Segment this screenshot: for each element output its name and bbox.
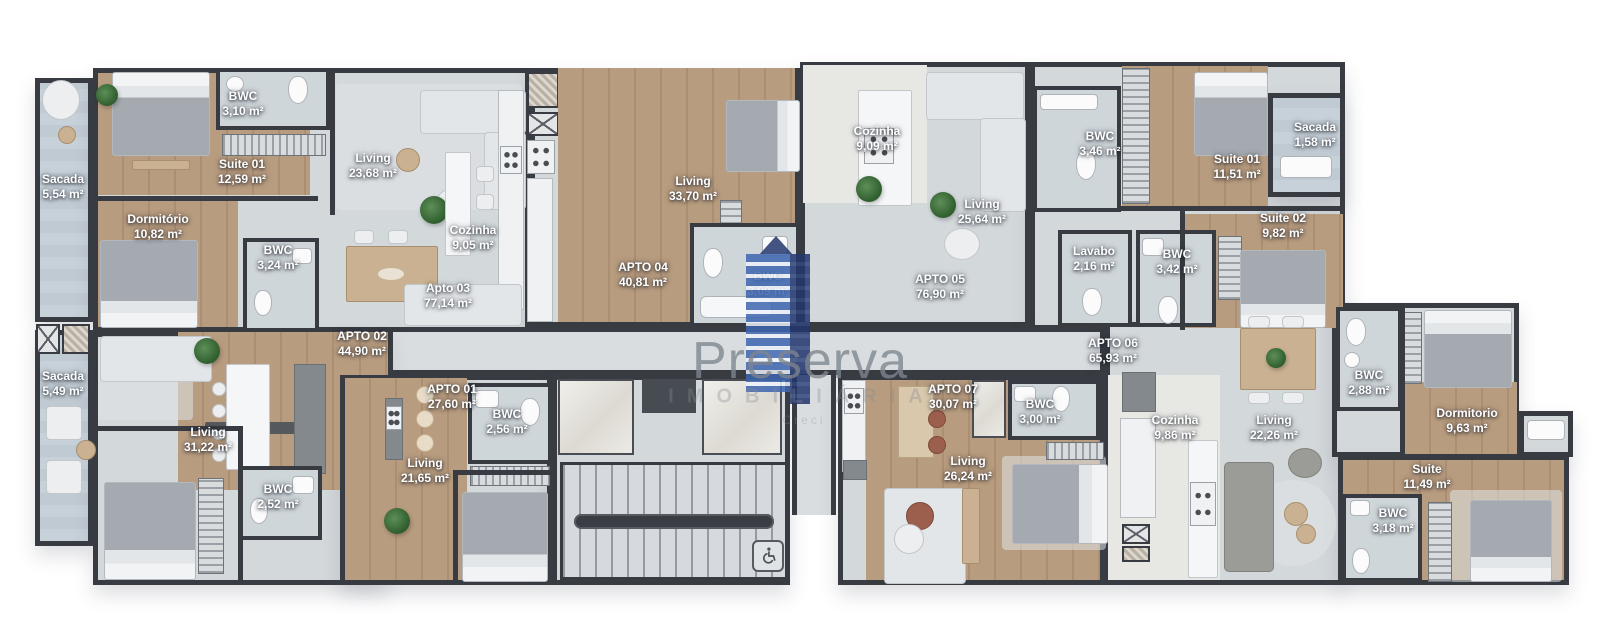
room-label-dormitorio: Dormitorio9,63 m² [1436, 406, 1497, 436]
coffee-table [396, 148, 420, 172]
room-name: Sacada [42, 172, 84, 187]
plant [194, 338, 220, 364]
room-name: Suite [1403, 462, 1450, 477]
bed-bench [132, 160, 190, 170]
room-name: Living [944, 454, 992, 469]
closet [1122, 68, 1150, 204]
toilet [1158, 296, 1178, 324]
wall [453, 470, 458, 585]
side-table [76, 440, 96, 460]
sofa [1224, 462, 1274, 572]
room-area: 9,63 m² [1436, 421, 1497, 436]
bed [1470, 500, 1552, 582]
elevator [702, 379, 782, 455]
room-area: 30,07 m² [928, 397, 978, 412]
plan-shape [764, 547, 775, 562]
bed [104, 482, 196, 580]
room-label-bwc: BWC3,00 m² [1019, 397, 1060, 427]
bed [112, 72, 210, 156]
ac-unit [1527, 420, 1565, 440]
kitchen-cabinet [1122, 372, 1156, 412]
sink [1040, 94, 1098, 110]
sofa [926, 72, 1024, 120]
sink [1344, 352, 1360, 368]
room-area: 2,88 m² [1348, 383, 1389, 398]
room-label-lavabo: Lavabo2,16 m² [1073, 244, 1115, 274]
side-table [1296, 524, 1316, 544]
room-area: 2,16 m² [1073, 259, 1115, 274]
room-label-apto-07: APTO 0730,07 m² [928, 382, 978, 412]
room-name: Living [401, 456, 449, 471]
stove [1190, 482, 1216, 526]
room-area: 11,51 m² [1213, 167, 1260, 182]
corridor [388, 327, 1105, 375]
room-label-bwc: BWC3,24 m² [257, 243, 298, 273]
room-label-living: Living23,68 m² [349, 151, 397, 181]
room-label-apto-02: APTO 0244,90 m² [337, 329, 387, 359]
room-label-bwc: BWC3,10 m² [222, 89, 263, 119]
sink [762, 236, 788, 256]
room-name: BWC [1079, 129, 1120, 144]
room-name: APTO 01 [427, 382, 477, 397]
tv-console [962, 488, 980, 564]
closet [1046, 442, 1104, 460]
room-label-suite-01: Suite 0111,51 m² [1213, 152, 1260, 182]
plant [96, 84, 118, 106]
closet [470, 466, 550, 486]
room-label-cozinha: Cozinha9,86 m² [1152, 413, 1199, 443]
room-name: Suite 01 [1213, 152, 1260, 167]
room-name: BWC [1348, 368, 1389, 383]
room-area: 25,64 m² [958, 212, 1006, 227]
room-name: BWC [1019, 397, 1060, 412]
room-area: 21,65 m² [401, 471, 449, 486]
room-area: 2,52 m² [257, 497, 298, 512]
room-area: 10,82 m² [127, 227, 188, 242]
balcony-chair [46, 406, 82, 440]
room-name: Suite 02 [1260, 211, 1306, 226]
room-label-bwc: BWC2,52 m² [257, 482, 298, 512]
closet [1428, 502, 1452, 582]
room-label-bwc: BWC2,56 m² [486, 407, 527, 437]
room-area: 3,46 m² [1079, 144, 1120, 159]
room-area: 40,81 m² [618, 275, 668, 290]
plant [420, 196, 448, 224]
wall [238, 426, 243, 585]
closet [1404, 312, 1422, 384]
room-name: APTO 02 [337, 329, 387, 344]
wheelchair-icon [757, 545, 779, 567]
room-label-bwc: BWC3,42 m² [1156, 247, 1197, 277]
room-label-suite: Suite11,49 m² [1403, 462, 1450, 492]
bed [1012, 464, 1108, 544]
room-area: 1,58 m² [1294, 135, 1336, 150]
room-label-living: Living33,70 m² [669, 174, 717, 204]
room-name: APTO 04 [618, 260, 668, 275]
room-area: 33,70 m² [669, 189, 717, 204]
kitchen-island [226, 364, 270, 470]
balcony-chair [46, 460, 82, 494]
room-area: 22,26 m² [1250, 428, 1298, 443]
stool [928, 410, 946, 428]
room-label-apto-01: APTO 0127,60 m² [427, 382, 477, 412]
corridor-bench [755, 348, 799, 364]
bed [1194, 72, 1268, 156]
chair [1248, 392, 1270, 404]
stool [928, 436, 946, 454]
room-label-living: Living25,64 m² [958, 197, 1006, 227]
room-name: Sacada [42, 369, 84, 384]
room-name: Lavabo [1073, 244, 1115, 259]
room-name: Cozinha [450, 223, 497, 238]
room-area: 5,49 m² [42, 384, 84, 399]
sink [1350, 500, 1370, 516]
room-area: 3,00 m² [1019, 412, 1060, 427]
room-label-living: Living26,24 m² [944, 454, 992, 484]
room-area: 3,42 m² [1156, 262, 1197, 277]
room-name: BWC [257, 482, 298, 497]
room-label-bwc: BWC3,18 m² [1372, 506, 1413, 536]
room-name: APTO 06 [1088, 336, 1138, 351]
side-table [1284, 502, 1308, 526]
room-label-sacada: Sacada1,58 m² [1294, 120, 1336, 150]
stove [500, 146, 522, 174]
wall [93, 196, 318, 201]
toilet [1346, 318, 1366, 346]
kitchen-cabinet [843, 460, 867, 480]
shaft-x-box [36, 324, 60, 354]
room-name: Dormitório [127, 212, 188, 227]
chair [476, 166, 494, 182]
room-label-cozinha: Cozinha9,05 m² [450, 223, 497, 253]
armchair [944, 228, 980, 260]
room-label-apto-04: APTO 0440,81 m² [618, 260, 668, 290]
room-name: BWC [486, 407, 527, 422]
chair [354, 230, 374, 244]
room-area: 9,82 m² [1260, 226, 1306, 241]
room-label-apto-06: APTO 0665,93 m² [1088, 336, 1138, 366]
bed [100, 240, 198, 328]
plan-shape [767, 547, 770, 550]
room-area: 2,56 m² [486, 422, 527, 437]
toilet [1352, 548, 1370, 574]
room-name: Living [958, 197, 1006, 212]
side-table [58, 126, 76, 144]
chair [1282, 316, 1304, 328]
room-label-living: Living22,26 m² [1250, 413, 1298, 443]
room-area: 65,93 m² [1088, 351, 1138, 366]
plant [930, 192, 956, 218]
elevator-shaft [642, 379, 696, 413]
room-name: Living [669, 174, 717, 189]
stove [386, 406, 402, 430]
toilet [288, 76, 308, 104]
wall [330, 68, 335, 215]
room-area: 9,09 m² [854, 139, 901, 154]
shaft-hatch-box [1122, 546, 1150, 562]
room-area: 26,24 m² [944, 469, 992, 484]
room-area: 31,22 m² [184, 440, 232, 455]
room-name: Suite 01 [218, 157, 266, 172]
plan-shape [769, 551, 775, 560]
kitchen-counter [498, 90, 524, 310]
room-label-bwc: BWC3,09 m² [747, 269, 788, 299]
room-label-living: Living21,65 m² [401, 456, 449, 486]
closet [198, 478, 224, 574]
room-name: APTO 05 [915, 272, 965, 287]
room-label-suite-02: Suite 029,82 m² [1260, 211, 1306, 241]
stove [844, 388, 864, 414]
room-area: 3,18 m² [1372, 521, 1413, 536]
chair [476, 194, 494, 210]
bed [1424, 310, 1512, 388]
room-area: 44,90 m² [337, 344, 387, 359]
plant [856, 176, 882, 202]
room-area: 23,68 m² [349, 166, 397, 181]
stove [527, 140, 555, 174]
closet [1218, 236, 1242, 300]
room-label-dormitório: Dormitório10,82 m² [127, 212, 188, 242]
kitchen-counter [294, 364, 326, 474]
room-label-apto-03: Apto 0377,14 m² [424, 281, 472, 311]
shaft-x-box [1122, 524, 1150, 544]
wheelchair-accessible-icon [752, 540, 784, 572]
chair [388, 230, 408, 244]
room-area: 76,90 m² [915, 287, 965, 302]
room-name: Sacada [1294, 120, 1336, 135]
stool [212, 382, 226, 396]
room-name: APTO 07 [928, 382, 978, 397]
room-name: Living [1250, 413, 1298, 428]
balcony-bench [1280, 156, 1332, 178]
wall [1400, 307, 1405, 455]
armchair [1288, 448, 1322, 478]
room-area: 3,10 m² [222, 104, 263, 119]
room-name: Living [184, 425, 232, 440]
chair [1248, 316, 1270, 328]
room-area: 77,14 m² [424, 296, 472, 311]
wall [1120, 206, 1345, 211]
room-name: Cozinha [1152, 413, 1199, 428]
corridor-stub [792, 375, 836, 515]
plant [384, 508, 410, 534]
room-name: BWC [222, 89, 263, 104]
room-name: Dormitorio [1436, 406, 1497, 421]
shaft-hatch-box [62, 324, 90, 354]
room-label-suite-01: Suite 0112,59 m² [218, 157, 266, 187]
shaft-hatch-box [527, 72, 559, 108]
room-label-bwc: BWC3,46 m² [1079, 129, 1120, 159]
wall [453, 470, 552, 475]
kitchen-counter [1120, 418, 1156, 518]
room-name: BWC [1156, 247, 1197, 262]
room-label-sacada: Sacada5,54 m² [42, 172, 84, 202]
toilet [1082, 288, 1102, 316]
room-name: BWC [1372, 506, 1413, 521]
platter [378, 268, 404, 280]
room-area: 3,24 m² [257, 258, 298, 273]
room-name: Living [349, 151, 397, 166]
room-area: 12,59 m² [218, 172, 266, 187]
stool [416, 434, 434, 452]
lounge-chair [42, 80, 80, 120]
shaft-x-box [527, 112, 559, 136]
plant [1266, 348, 1286, 368]
room-name: BWC [747, 269, 788, 284]
room-name: BWC [257, 243, 298, 258]
room-area: 11,49 m² [1403, 477, 1450, 492]
coffee-table [894, 524, 924, 554]
room-area: 5,54 m² [42, 187, 84, 202]
room-name: Apto 03 [424, 281, 472, 296]
closet [222, 134, 326, 156]
toilet [254, 290, 272, 316]
room-area: 27,60 m² [427, 397, 477, 412]
room-name: Cozinha [854, 124, 901, 139]
bed [462, 492, 548, 582]
bathtub [700, 296, 772, 318]
room-label-bwc: BWC2,88 m² [1348, 368, 1389, 398]
stool [416, 410, 434, 428]
room-area: 9,05 m² [450, 238, 497, 253]
room-label-sacada: Sacada5,49 m² [42, 369, 84, 399]
room-label-apto-05: APTO 0576,90 m² [915, 272, 965, 302]
stair-handrail [574, 514, 774, 529]
room-label-cozinha: Cozinha9,09 m² [854, 124, 901, 154]
chair [1282, 392, 1304, 404]
room-label-living: Living31,22 m² [184, 425, 232, 455]
elevator [558, 379, 634, 455]
bed [726, 100, 800, 172]
floor-plan: Sacada5,54 m²BWC3,10 m²Suite 0112,59 m²L… [0, 0, 1600, 640]
sink [475, 390, 499, 408]
stool [212, 404, 226, 418]
room-area: 3,09 m² [747, 284, 788, 299]
toilet [703, 248, 723, 278]
room-area: 9,86 m² [1152, 428, 1199, 443]
kitchen-counter [527, 178, 553, 322]
